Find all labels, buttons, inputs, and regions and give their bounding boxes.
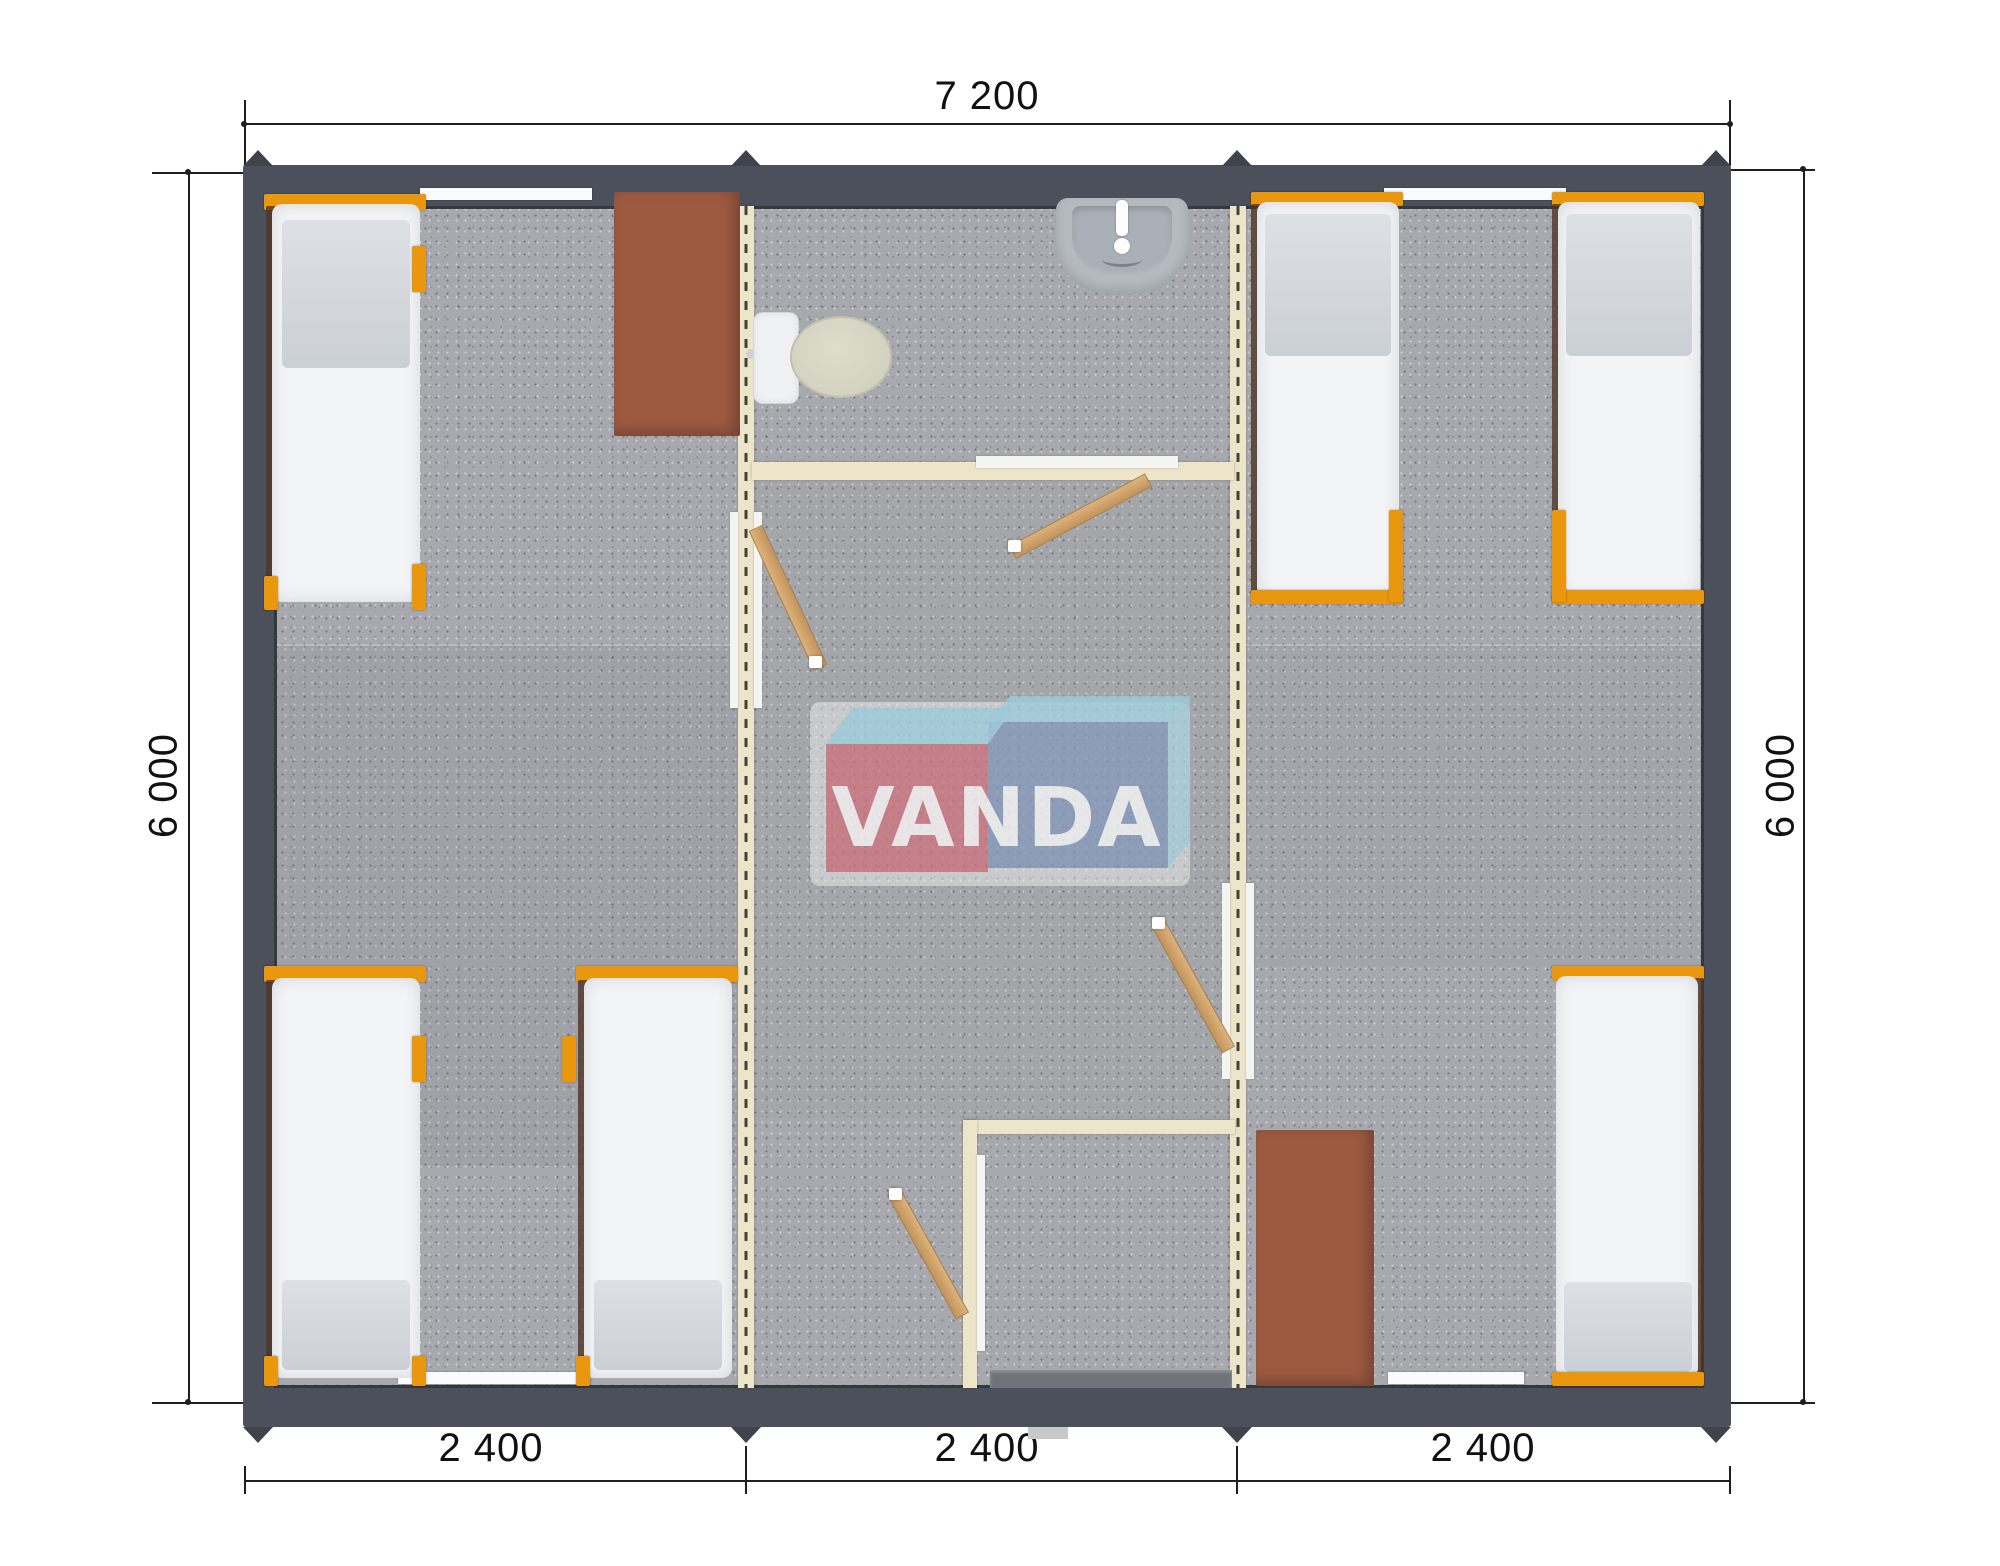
- dimension-label-right: 6 000: [1759, 686, 1804, 886]
- extension-line: [1729, 100, 1731, 166]
- dimension-label-bottom-1: 2 400: [391, 1426, 591, 1471]
- dimension-label-bottom-3: 2 400: [1383, 1426, 1583, 1471]
- bed-head-rail: [1552, 1372, 1704, 1386]
- sink: [1056, 198, 1188, 294]
- dimension-tick: [745, 1446, 747, 1494]
- extension-line: [1731, 1402, 1815, 1404]
- sink-faucet: [1116, 200, 1128, 236]
- door-jamb: [1246, 883, 1254, 1079]
- corner-casting: [1222, 150, 1252, 166]
- bed: [576, 966, 738, 1386]
- corner-casting: [243, 1427, 273, 1443]
- bathroom-sliding-door: [976, 456, 1178, 468]
- door-handle: [889, 1188, 902, 1200]
- entrance-step: [1028, 1427, 1068, 1439]
- door-jamb: [730, 512, 738, 708]
- door-handle: [809, 656, 822, 668]
- dimension-tick: [244, 1466, 246, 1494]
- wall-dash-line: [1237, 206, 1240, 1388]
- corner-casting: [1701, 150, 1731, 166]
- bed-pillow: [594, 1280, 722, 1370]
- bed: [264, 966, 426, 1386]
- shower-door-panel: [977, 1155, 985, 1351]
- dimension-label-left: 6 000: [142, 686, 187, 886]
- bed: [1552, 192, 1704, 604]
- dimension-tick: [1729, 1466, 1731, 1494]
- bed-post: [412, 564, 426, 610]
- bed: [1251, 192, 1403, 604]
- bed-foot-rail: [1251, 590, 1403, 604]
- door-handle: [1008, 540, 1021, 552]
- sink-drain: [1102, 252, 1142, 267]
- bed-pillow: [1265, 214, 1391, 356]
- bed: [1552, 966, 1704, 1386]
- logo-blue-box-top: [988, 696, 1190, 722]
- toilet-lid: [790, 316, 892, 398]
- bed: [264, 194, 426, 610]
- corner-casting: [1222, 1427, 1252, 1443]
- bed-pillow: [282, 220, 410, 368]
- dimension-label-top: 7 200: [887, 74, 1087, 119]
- floor-shade: [1246, 646, 1701, 966]
- desk: [1256, 1130, 1374, 1386]
- shower-wall-top: [963, 1120, 1235, 1134]
- bed-post: [1389, 510, 1403, 602]
- shower-tray: [990, 1370, 1232, 1388]
- window: [420, 188, 592, 200]
- bed-post: [412, 1036, 426, 1082]
- window: [1384, 188, 1566, 200]
- extension-line: [244, 100, 246, 166]
- dimension-line-bottom: [244, 1480, 1731, 1482]
- dimension-line-right: [1803, 169, 1805, 1403]
- bed-post: [412, 246, 426, 292]
- desk: [614, 192, 740, 436]
- bed-pillow: [1566, 214, 1692, 356]
- floor-plan-canvas: 7 200 6 000 6 000 2 400 2 400 2 400: [0, 0, 2000, 1566]
- extension-line: [152, 1402, 244, 1404]
- bed-foot-rail: [1552, 590, 1704, 604]
- window: [398, 1372, 590, 1384]
- dimension-tick: [1236, 1446, 1238, 1494]
- dimension-line-left: [188, 172, 190, 1403]
- bed-post: [576, 1356, 590, 1386]
- bed-post: [1552, 510, 1566, 602]
- dimension-line-top: [244, 123, 1731, 125]
- bed-post: [562, 1036, 576, 1082]
- logo-red-box-top: [826, 708, 1014, 744]
- extension-line: [1731, 169, 1815, 171]
- corner-casting: [731, 1427, 761, 1443]
- partition-wall-right: [1230, 206, 1246, 1388]
- bed-pillow: [282, 1280, 410, 1370]
- logo-blue-box-side: [1168, 696, 1190, 868]
- extension-line: [152, 172, 244, 174]
- vanda-logo-watermark: VANDA: [806, 696, 1196, 891]
- bed-post: [264, 576, 278, 610]
- logo-text: VANDA: [831, 771, 1163, 866]
- corner-casting: [1701, 1427, 1731, 1443]
- shower-wall-left: [963, 1120, 977, 1388]
- window: [1388, 1372, 1524, 1384]
- door-handle: [1152, 917, 1165, 929]
- toilet: [746, 310, 896, 406]
- bed-pillow: [1564, 1282, 1692, 1372]
- corner-casting: [243, 150, 273, 166]
- corner-casting: [731, 150, 761, 166]
- bed-post: [412, 1356, 426, 1386]
- bed-post: [264, 1356, 278, 1386]
